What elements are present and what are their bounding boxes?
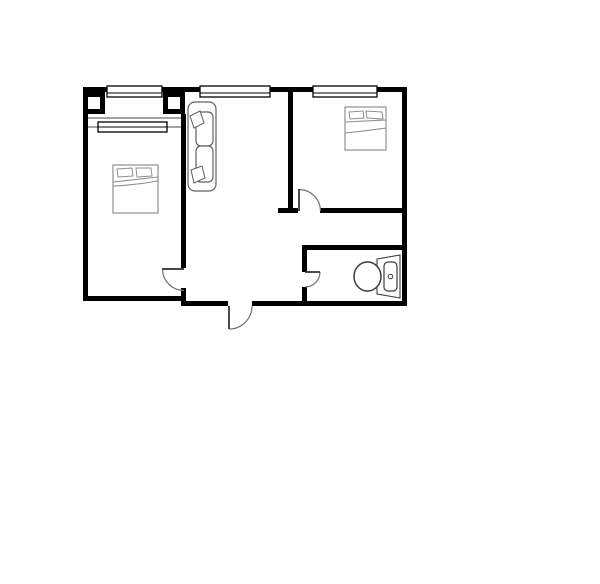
bed-right-part-2 <box>366 111 383 119</box>
wall-bottom-right <box>252 301 407 306</box>
window-living <box>200 86 270 97</box>
toilet-part-3 <box>354 262 381 291</box>
bed-left-part-1 <box>117 168 133 177</box>
bed-right-part-1 <box>349 111 364 119</box>
wall-left <box>83 87 88 301</box>
wall-divider-right <box>288 92 293 213</box>
floor-plan-svg <box>0 0 600 584</box>
wall-right <box>402 87 407 306</box>
door-bedroom-left-swing-arc <box>163 269 185 291</box>
pier-bay-right-inner <box>168 97 180 109</box>
wall-divider-right-stub <box>278 208 298 213</box>
wall-bath-left-lower <box>302 287 307 301</box>
bed-left-part-2 <box>136 168 152 177</box>
wall-bottom-mid <box>186 301 228 306</box>
wall-top-mid-2 <box>270 87 314 92</box>
pier-bay-left-inner <box>88 97 100 109</box>
wall-top-mid-1 <box>162 87 201 92</box>
wall-bath-left-upper <box>302 250 307 272</box>
floor-plan <box>0 0 600 584</box>
window-bedroom-left-outer <box>107 86 162 97</box>
wall-bottom-left <box>83 296 186 301</box>
toilet-part-1 <box>384 262 397 291</box>
door-bedroom-right-swing-arc <box>299 190 321 212</box>
door-bathroom-swing-arc <box>305 272 320 287</box>
wall-divider-left-upper <box>181 114 186 268</box>
wall-bath-top <box>302 245 402 250</box>
wall-bedroom-right-bottom <box>320 208 402 213</box>
door-entrance-swing-arc <box>229 306 252 329</box>
window-bedroom-right <box>313 86 377 97</box>
